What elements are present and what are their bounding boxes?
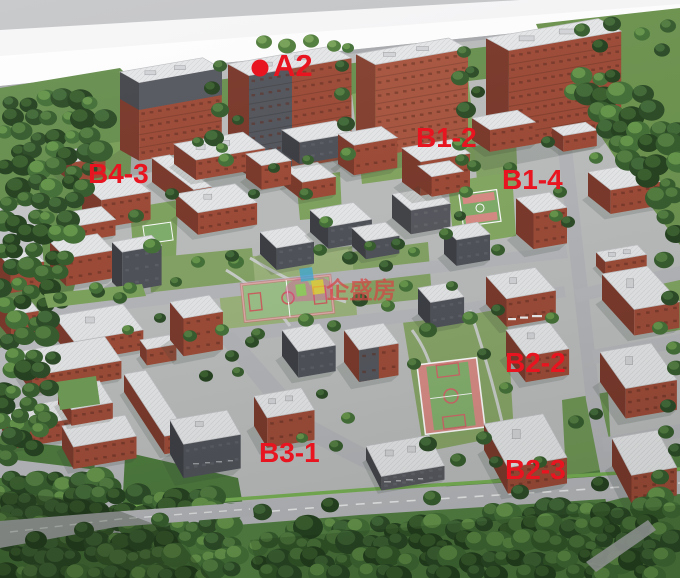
- svg-text:B2-3: B2-3: [505, 454, 566, 485]
- svg-text:B1-4: B1-4: [502, 164, 563, 195]
- svg-text:B2-2: B2-2: [505, 347, 566, 378]
- svg-text:B4-3: B4-3: [88, 158, 149, 189]
- svg-text:A2: A2: [273, 48, 313, 83]
- svg-text:B3-1: B3-1: [259, 437, 320, 468]
- svg-text:B1-2: B1-2: [416, 122, 477, 153]
